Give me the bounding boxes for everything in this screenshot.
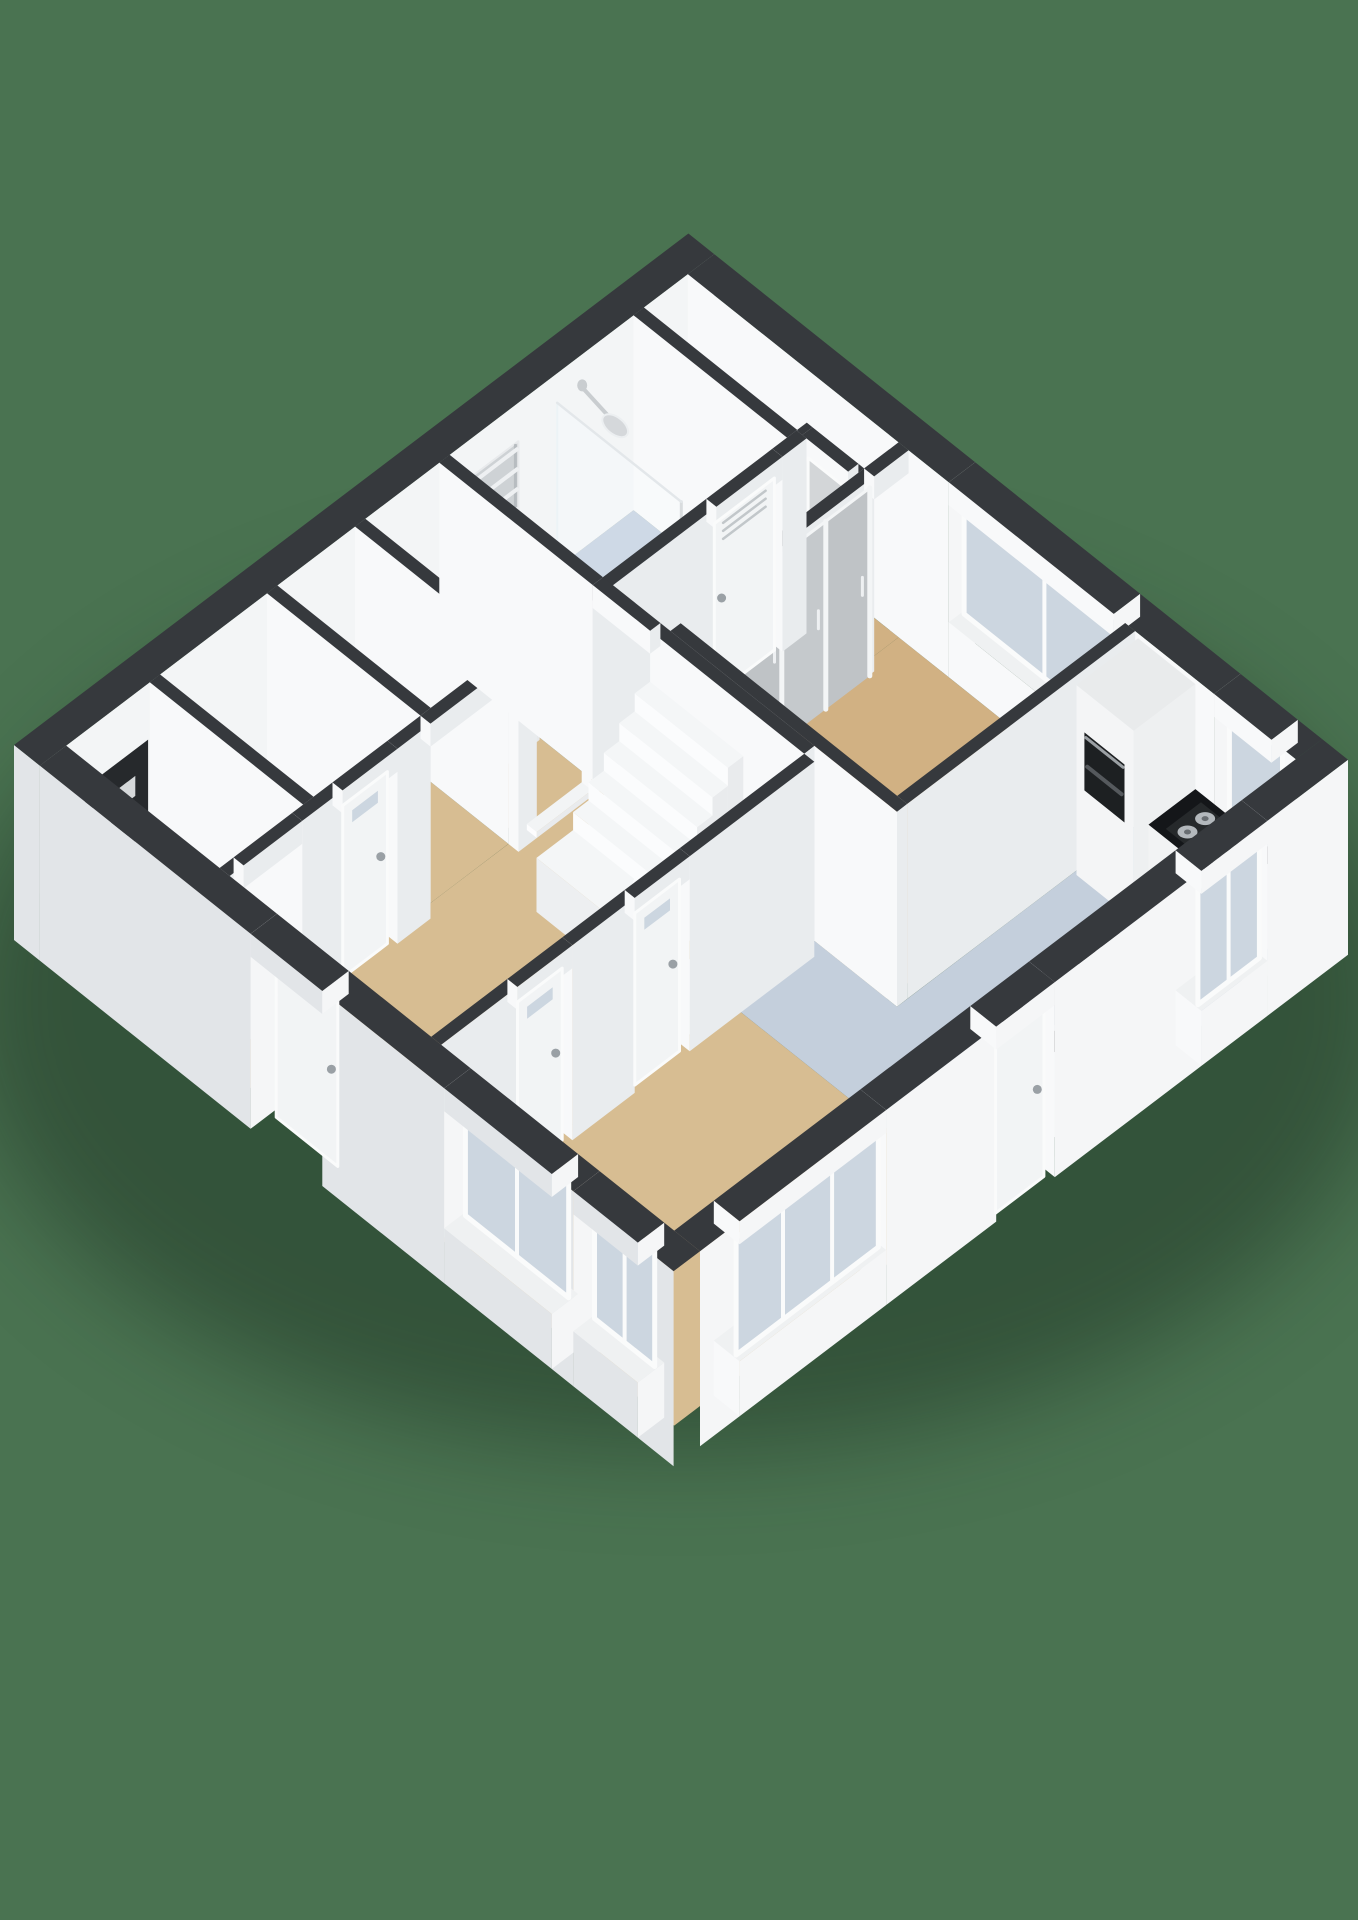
floorplan-canvas xyxy=(0,0,1358,1920)
door-handle xyxy=(668,960,677,969)
facet xyxy=(897,804,907,1007)
door-handle xyxy=(1033,1085,1042,1094)
facet xyxy=(14,745,40,961)
floorplan-3d-render xyxy=(0,0,1358,1920)
wardrobe-front xyxy=(826,488,870,709)
door-handle xyxy=(551,1049,560,1058)
hob-burner-cap xyxy=(1202,816,1209,821)
door-handle xyxy=(717,594,726,603)
facet xyxy=(782,438,806,651)
door-handle xyxy=(376,852,385,861)
door-handle xyxy=(327,1065,336,1074)
hob-burner-cap xyxy=(1184,830,1191,835)
facet xyxy=(398,724,431,944)
